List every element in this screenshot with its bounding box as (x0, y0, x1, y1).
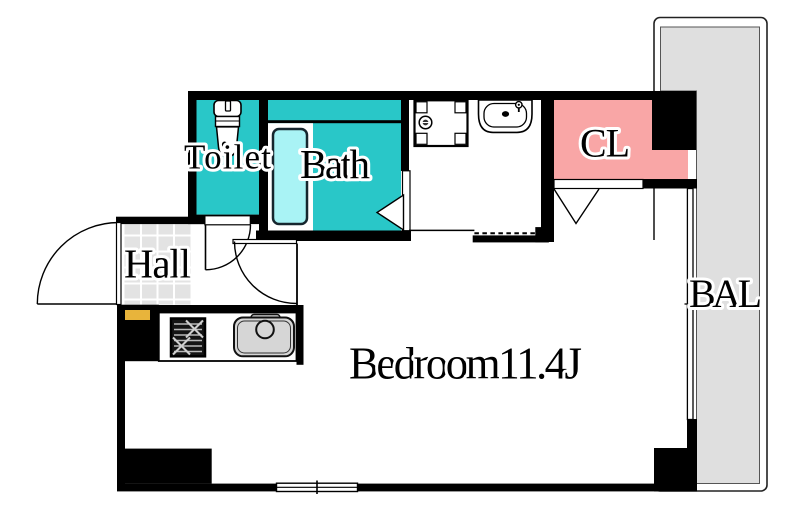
svg-text:Toilet: Toilet (184, 138, 271, 177)
svg-text:BAL: BAL (689, 271, 762, 316)
svg-text:Bedroom11.4J: Bedroom11.4J (349, 339, 582, 389)
svg-text:Hall: Hall (124, 241, 191, 287)
svg-text:Bath: Bath (300, 141, 370, 187)
svg-text:CL: CL (580, 121, 630, 166)
